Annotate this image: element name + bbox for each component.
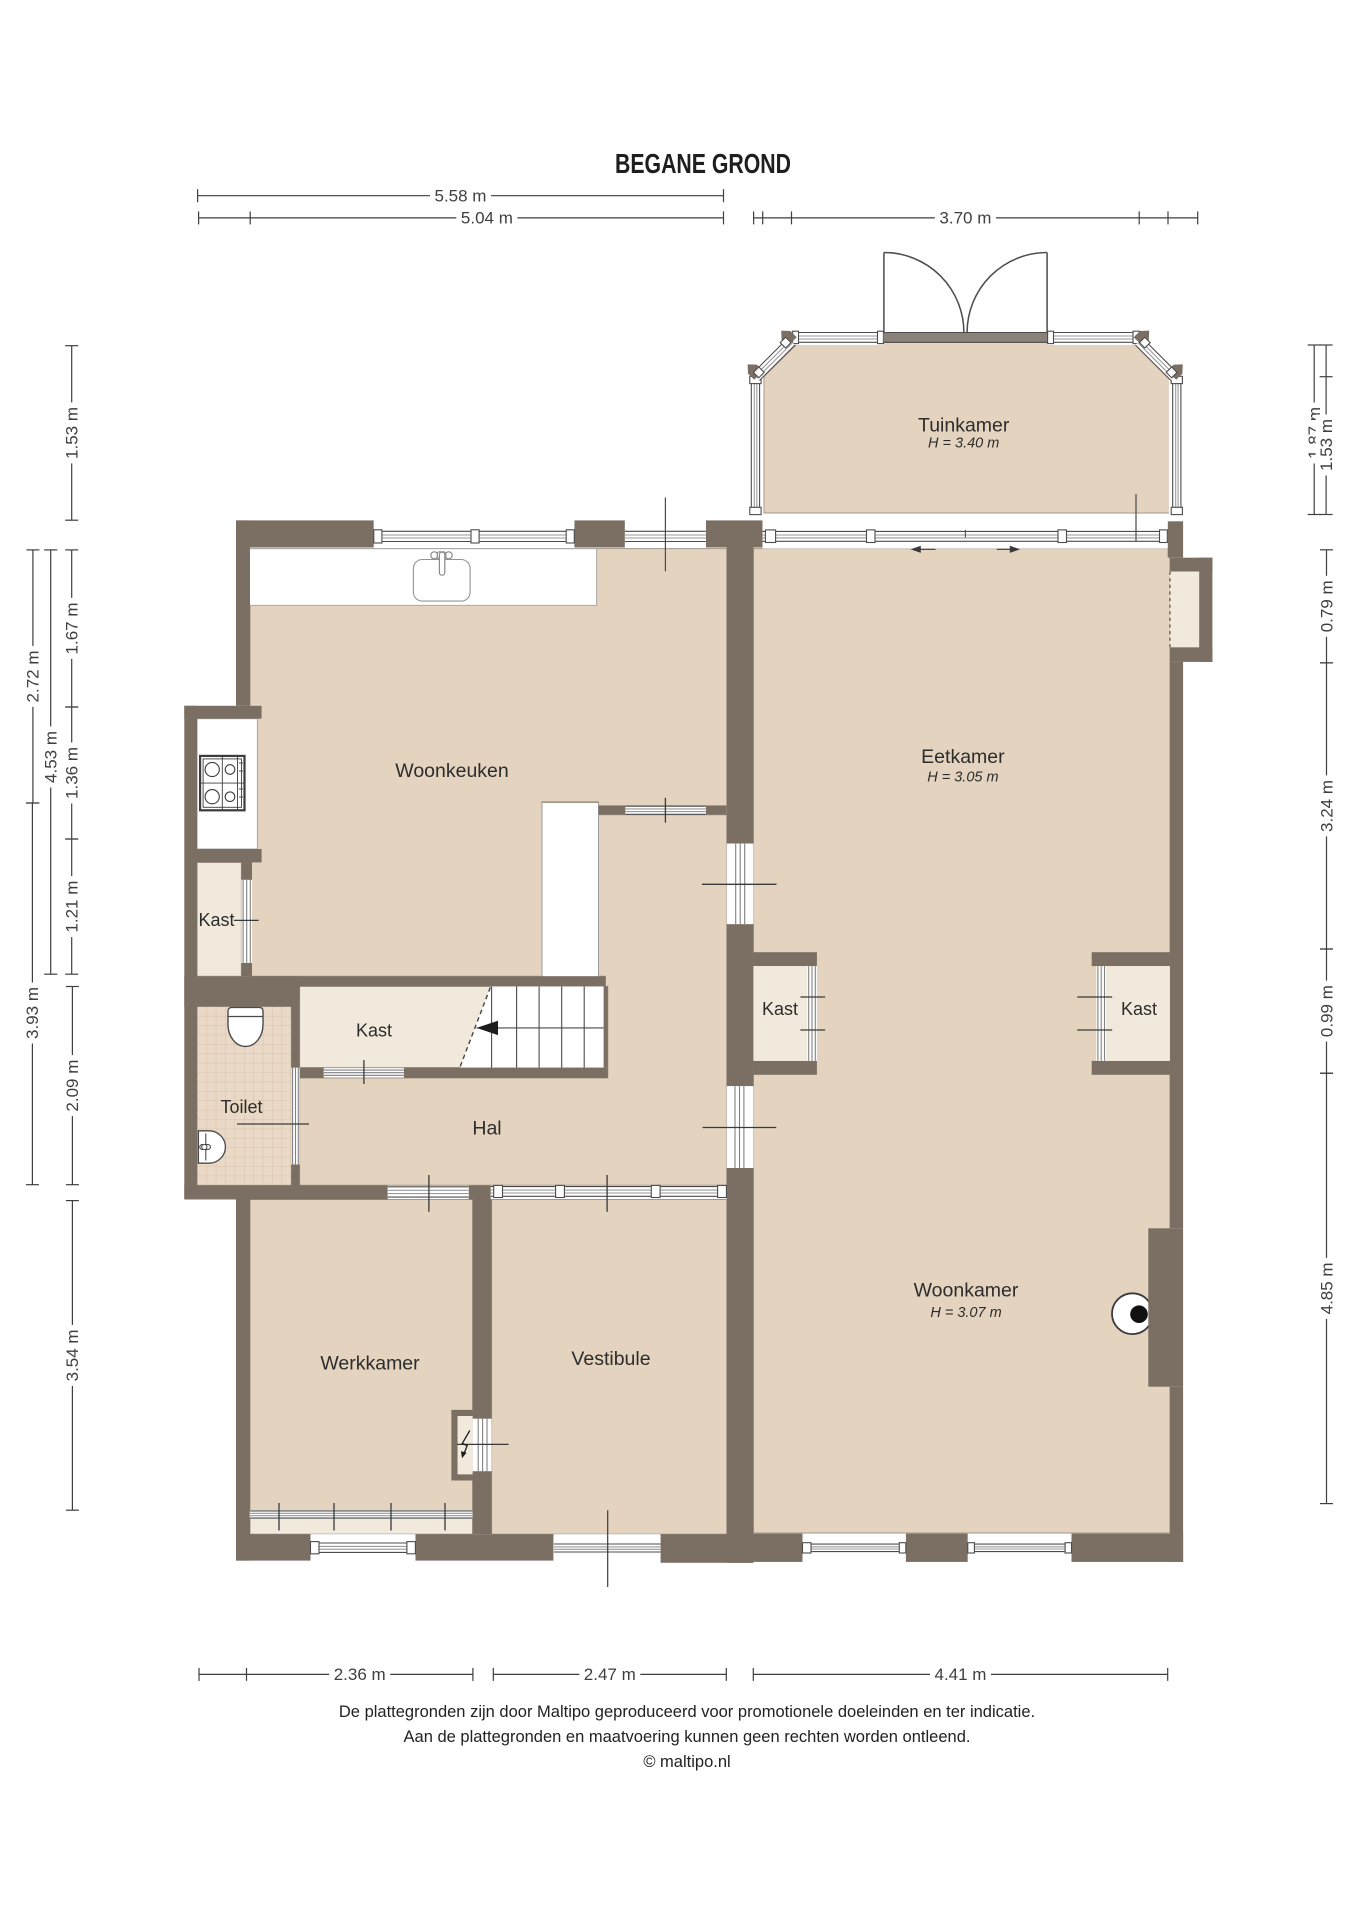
svg-text:Eetkamer: Eetkamer — [921, 746, 1005, 768]
svg-text:H = 3.05 m: H = 3.05 m — [927, 770, 998, 786]
svg-text:0.79 m: 0.79 m — [1317, 580, 1336, 632]
svg-text:3.24 m: 3.24 m — [1317, 780, 1336, 832]
svg-text:Kast: Kast — [198, 910, 234, 930]
svg-text:1.67 m: 1.67 m — [63, 603, 82, 655]
svg-text:2.36 m: 2.36 m — [334, 1665, 386, 1684]
svg-text:3.54 m: 3.54 m — [63, 1329, 82, 1381]
svg-text:Vestibule: Vestibule — [571, 1348, 650, 1370]
svg-text:1.36 m: 1.36 m — [63, 747, 82, 799]
svg-text:3.93 m: 3.93 m — [23, 987, 42, 1039]
svg-text:Toilet: Toilet — [220, 1097, 262, 1117]
svg-text:Aan de plattegronden en maatvo: Aan de plattegronden en maatvoering kunn… — [404, 1728, 971, 1746]
svg-text:Woonkeuken: Woonkeuken — [395, 760, 508, 782]
svg-text:Werkkamer: Werkkamer — [320, 1353, 420, 1375]
svg-text:2.09 m: 2.09 m — [63, 1060, 82, 1112]
svg-text:Kast: Kast — [356, 1021, 392, 1041]
svg-text:Kast: Kast — [1121, 999, 1157, 1019]
svg-text:H = 3.07 m: H = 3.07 m — [930, 1305, 1001, 1321]
svg-text:Kast: Kast — [762, 999, 798, 1019]
svg-text:1.53 m: 1.53 m — [63, 407, 82, 459]
svg-text:Hal: Hal — [472, 1118, 501, 1140]
svg-text:1.21 m: 1.21 m — [63, 881, 82, 933]
svg-text:2.47 m: 2.47 m — [584, 1665, 636, 1684]
svg-text:4.53 m: 4.53 m — [42, 731, 61, 783]
svg-text:1.53 m: 1.53 m — [1317, 419, 1336, 471]
svg-text:De plattegronden zijn door Mal: De plattegronden zijn door Maltipo gepro… — [339, 1703, 1035, 1721]
svg-text:2.72 m: 2.72 m — [24, 651, 43, 703]
svg-text:H = 3.40 m: H = 3.40 m — [928, 436, 999, 452]
svg-text:4.41 m: 4.41 m — [935, 1665, 987, 1684]
svg-text:0.99 m: 0.99 m — [1317, 985, 1336, 1037]
svg-text:5.58 m: 5.58 m — [435, 187, 487, 206]
svg-text:3.70 m: 3.70 m — [939, 209, 991, 228]
svg-text:5.04 m: 5.04 m — [461, 209, 513, 228]
svg-text:4.85 m: 4.85 m — [1317, 1262, 1336, 1314]
svg-text:© maltipo.nl: © maltipo.nl — [643, 1753, 730, 1771]
svg-text:Tuinkamer: Tuinkamer — [918, 415, 1010, 437]
svg-text:Woonkamer: Woonkamer — [914, 1280, 1019, 1302]
svg-text:BEGANE GROND: BEGANE GROND — [615, 148, 791, 179]
